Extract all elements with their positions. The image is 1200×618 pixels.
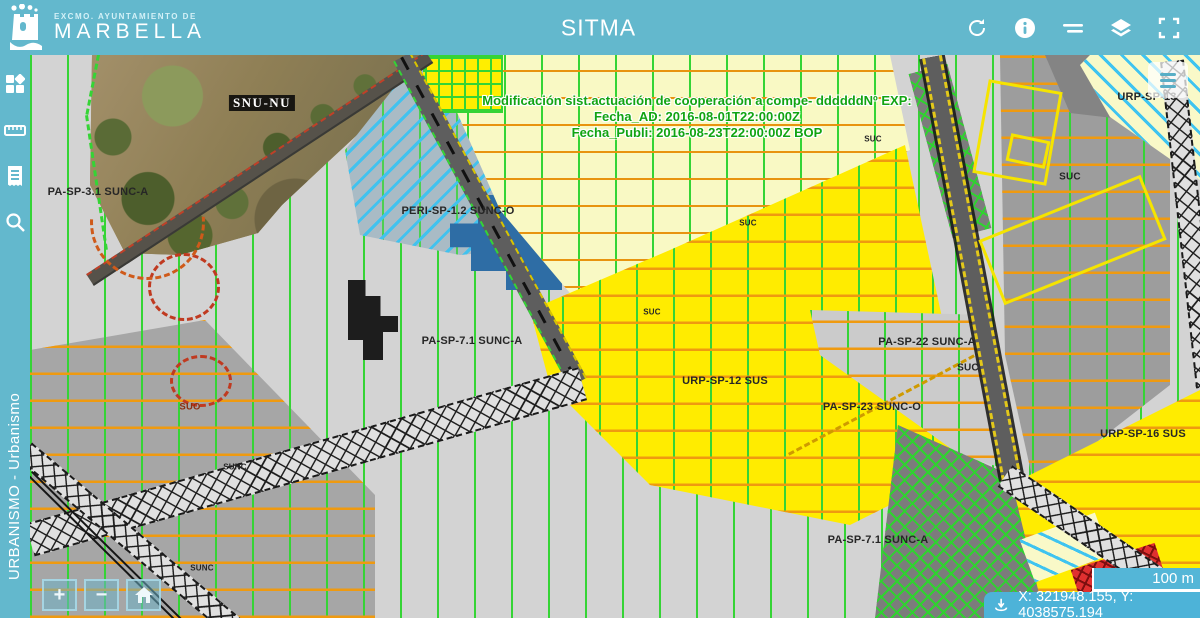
map-zone-label: SUNC <box>223 463 246 472</box>
measure-button[interactable] <box>0 113 30 147</box>
scale-label: 100 m <box>1152 570 1194 587</box>
zoom-controls: + − <box>42 579 161 611</box>
home-button[interactable] <box>126 579 161 611</box>
app-header: EXCMO. AYUNTAMIENTO DE MARBELLA SITMA <box>0 0 1200 55</box>
info-button[interactable] <box>1012 15 1038 41</box>
app-title: SITMA <box>561 14 636 41</box>
annotation-line1: Modificación sist.actuación de cooperaci… <box>432 93 962 109</box>
zoom-out-button[interactable]: − <box>84 579 119 611</box>
legend-bars-icon <box>1160 73 1176 76</box>
map-zone-label: PERI-SP-1.2 SUNC-O <box>401 205 514 217</box>
coordinates-text: X: 321948.155, Y: 4038575.194 <box>1018 589 1200 618</box>
map-zone-label: PA-SP-3.1 SUNC-A <box>48 186 149 198</box>
overview-map-button[interactable] <box>1148 62 1188 98</box>
header-actions <box>964 0 1182 55</box>
layers-icon <box>1109 16 1133 40</box>
swipe-compare-icon <box>1061 16 1085 40</box>
map-zone-label: PA-SP-7.1 SUNC-A <box>422 335 523 347</box>
coordinate-pick-icon[interactable] <box>994 597 1008 613</box>
red-dashed-boundary-2 <box>170 355 232 407</box>
measure-ruler-icon <box>4 119 26 141</box>
map-zone-label: URP-SP-16 SUS <box>1100 428 1186 440</box>
legend-list-icon <box>5 165 25 187</box>
swipe-compare-button[interactable] <box>1060 15 1086 41</box>
map-zone-label: SUC <box>643 308 661 317</box>
refresh-button[interactable] <box>964 15 990 41</box>
map-zone-label: SNU-NU <box>229 95 295 111</box>
fullscreen-button[interactable] <box>1156 15 1182 41</box>
org-line1: EXCMO. AYUNTAMIENTO DE <box>54 12 206 21</box>
annotation-line3: Fecha_Publi: 2016-08-23T22:00:00Z BOP <box>432 125 962 141</box>
map-annotation: Modificación sist.actuación de cooperaci… <box>432 93 962 141</box>
map-zone-label: SUC <box>739 219 757 228</box>
home-icon <box>135 587 153 603</box>
fullscreen-icon <box>1158 17 1180 39</box>
map-zone-label: URP-SP-12 SUS <box>682 375 768 387</box>
map-zone-label: SUC <box>1059 172 1081 183</box>
map-zone-label: PA-SP-23 SUNC-O <box>823 401 921 413</box>
annotation-line2: Fecha_AD: 2016-08-01T22:00:00Z <box>432 109 962 125</box>
org-line2: MARBELLA <box>54 21 206 43</box>
zoom-in-button[interactable]: + <box>42 579 77 611</box>
marbella-logo: EXCMO. AYUNTAMIENTO DE MARBELLA <box>6 4 206 50</box>
module-vertical-label: URBANISMO - Urbanismo <box>0 350 30 580</box>
search-button[interactable] <box>0 205 30 239</box>
left-sidebar: URBANISMO - Urbanismo <box>0 55 30 618</box>
logo-text: EXCMO. AYUNTAMIENTO DE MARBELLA <box>54 12 206 43</box>
info-icon <box>1013 16 1037 40</box>
map-zone-label: SUO <box>179 402 200 413</box>
map-zone-label: PA-SP-22 SUNC-A <box>878 336 976 348</box>
apps-grid-icon <box>5 74 25 94</box>
legend-button[interactable] <box>0 159 30 193</box>
search-icon <box>4 211 26 233</box>
coordinates-bar: X: 321948.155, Y: 4038575.194 <box>984 592 1200 618</box>
castle-logo-icon <box>6 4 46 50</box>
map-canvas[interactable]: Modificación sist.actuación de cooperaci… <box>30 55 1200 618</box>
refresh-icon <box>966 17 988 39</box>
map-zone-label: SUNC <box>190 564 213 573</box>
map-zone-label: PA-SP-7.1 SUNC-A <box>828 534 929 546</box>
layers-button[interactable] <box>1108 15 1134 41</box>
apps-grid-button[interactable] <box>0 67 30 101</box>
map-zone-label: SUC <box>957 363 979 374</box>
